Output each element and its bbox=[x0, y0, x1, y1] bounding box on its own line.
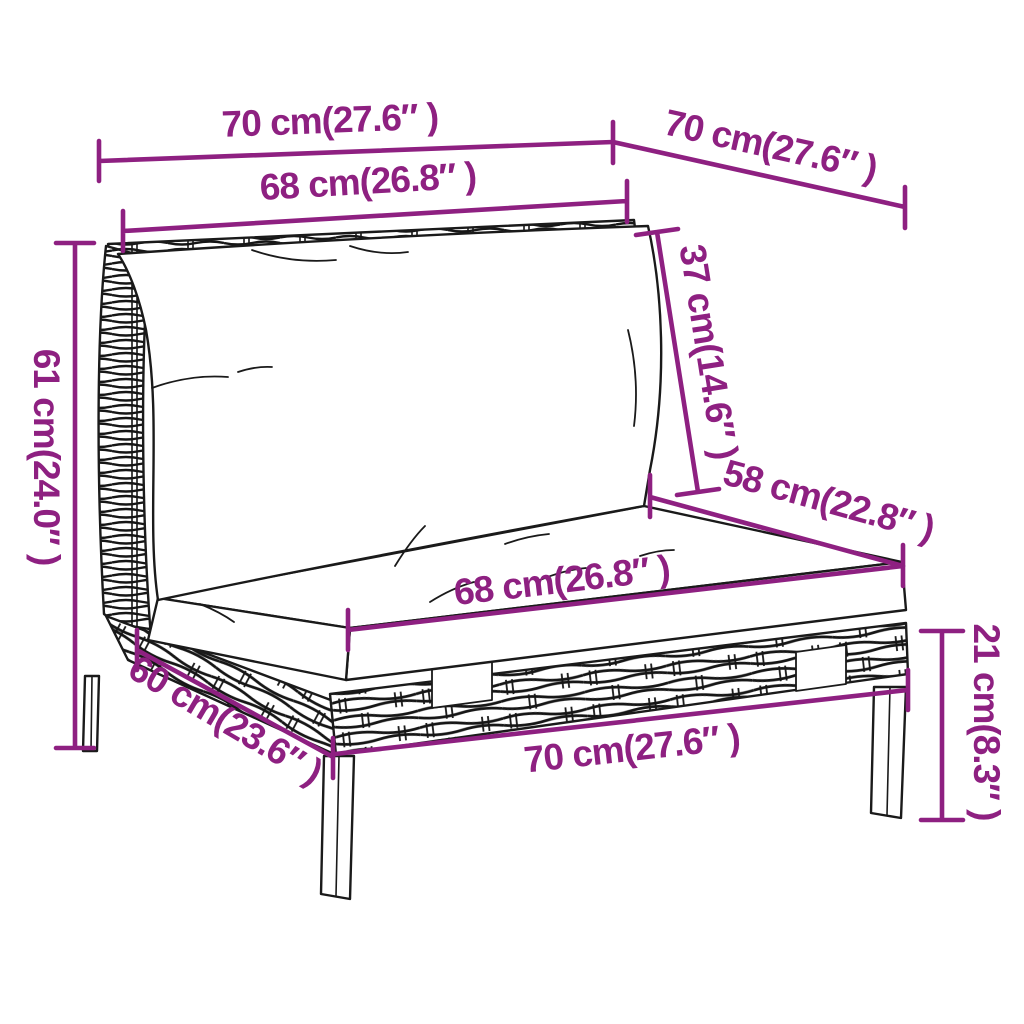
sofa-dimension-diagram: 70 cm(27.6″ ) 70 cm(27.6″ ) 68 cm(26.8″ … bbox=[0, 0, 1024, 1024]
base-bracket-right bbox=[796, 645, 846, 691]
dim-label-top-width: 70 cm(27.6″ ) bbox=[221, 96, 439, 145]
dim-label-back-cushion-height: 37 cm(14.6″ ) bbox=[671, 241, 745, 461]
dim-line-leg-height bbox=[921, 631, 963, 820]
dim-label-base-width: 70 cm(27.6″ ) bbox=[522, 716, 742, 781]
dim-label-back-cushion-width: 68 cm(26.8″ ) bbox=[259, 155, 478, 208]
sofa-drawing bbox=[83, 220, 908, 899]
dim-label-leg-height: 21 cm(8.3″ ) bbox=[966, 624, 1007, 821]
dim-label-total-height: 61 cm(24.0″ ) bbox=[26, 349, 67, 566]
dimension-diagram-canvas: 70 cm(27.6″ ) 70 cm(27.6″ ) 68 cm(26.8″ … bbox=[0, 0, 1024, 1024]
leg-back-left-edge bbox=[91, 676, 92, 751]
